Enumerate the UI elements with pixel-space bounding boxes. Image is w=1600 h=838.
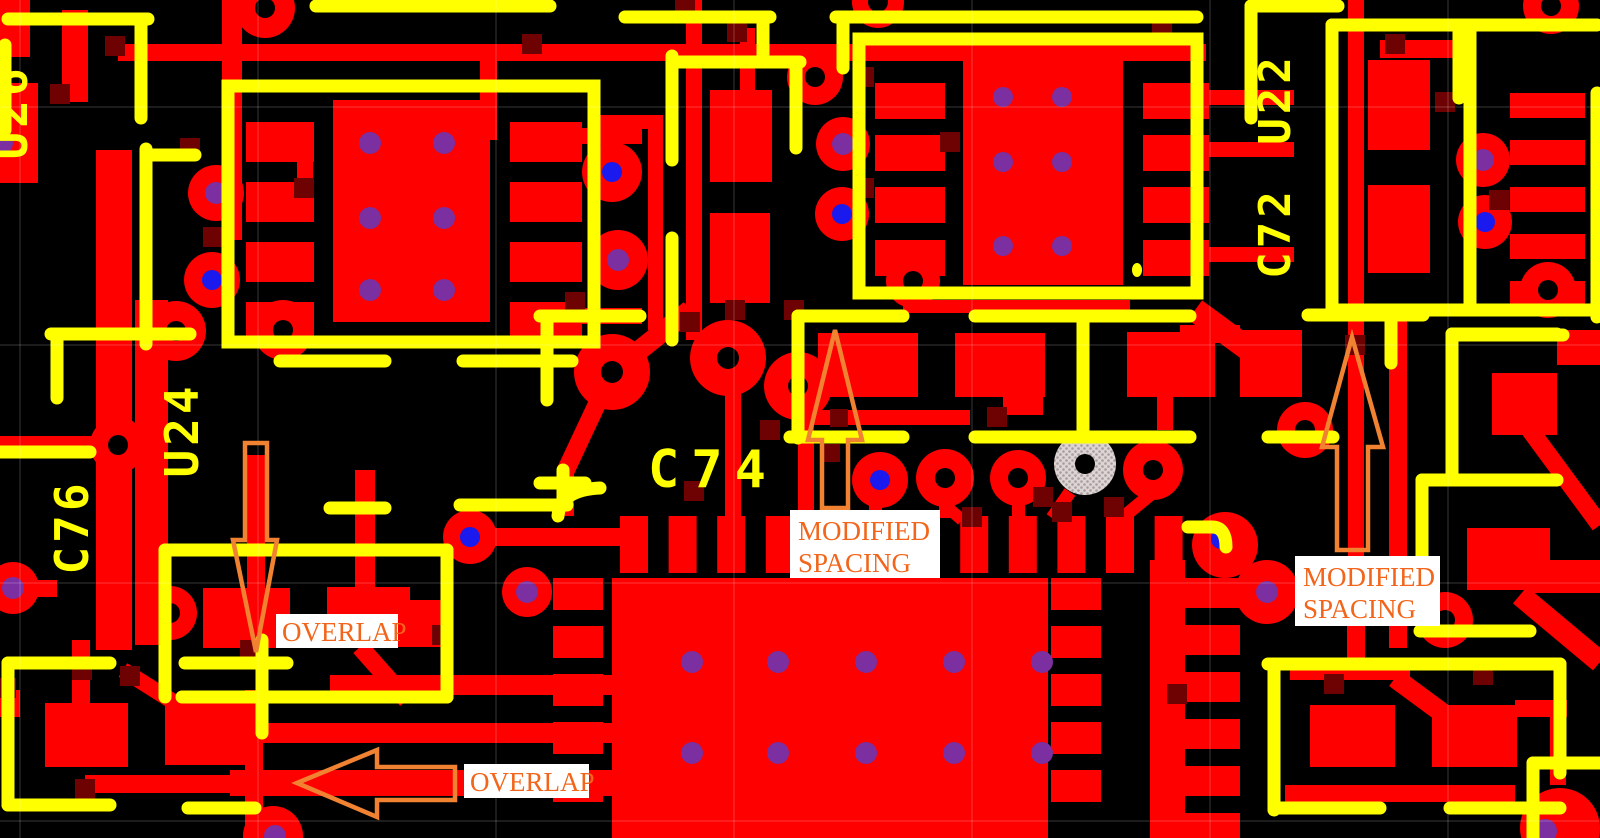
modified-spacing-text-line2: SPACING xyxy=(798,548,911,578)
designator-c72[interactable]: C72 xyxy=(1250,187,1301,278)
pcb-canvas[interactable]: U26 C76 U24 C74 C72 U22 MODIFIED SPACING xyxy=(0,0,1600,838)
pcb-layout-viewport[interactable]: U26 C76 U24 C74 C72 U22 MODIFIED SPACING xyxy=(0,0,1600,838)
modified-spacing-callout-2[interactable]: MODIFIED SPACING xyxy=(1295,556,1440,626)
modified-spacing-text-line1: MODIFIED xyxy=(1303,562,1435,592)
overlap-callout-2[interactable]: OVERLAP xyxy=(464,764,595,798)
ic1-thermal-pad xyxy=(333,100,490,322)
qfn-thermal-pad xyxy=(612,578,1048,838)
modified-spacing-text-line1: MODIFIED xyxy=(798,516,930,546)
overlap-text: OVERLAP xyxy=(282,617,407,647)
designator-c76[interactable]: C76 xyxy=(45,479,99,574)
designator-u24[interactable]: U24 xyxy=(155,382,209,477)
designator-u26[interactable]: U26 xyxy=(0,64,38,159)
designator-c74[interactable]: C74 xyxy=(648,440,778,500)
modified-spacing-callout-1[interactable]: MODIFIED SPACING xyxy=(790,510,940,578)
overlap-text: OVERLAP xyxy=(470,767,595,797)
ic2-thermal-pad xyxy=(963,55,1123,285)
designator-u22[interactable]: U22 xyxy=(1250,53,1301,144)
overlap-callout-1[interactable]: OVERLAP xyxy=(276,614,407,648)
modified-spacing-text-line2: SPACING xyxy=(1303,594,1416,624)
